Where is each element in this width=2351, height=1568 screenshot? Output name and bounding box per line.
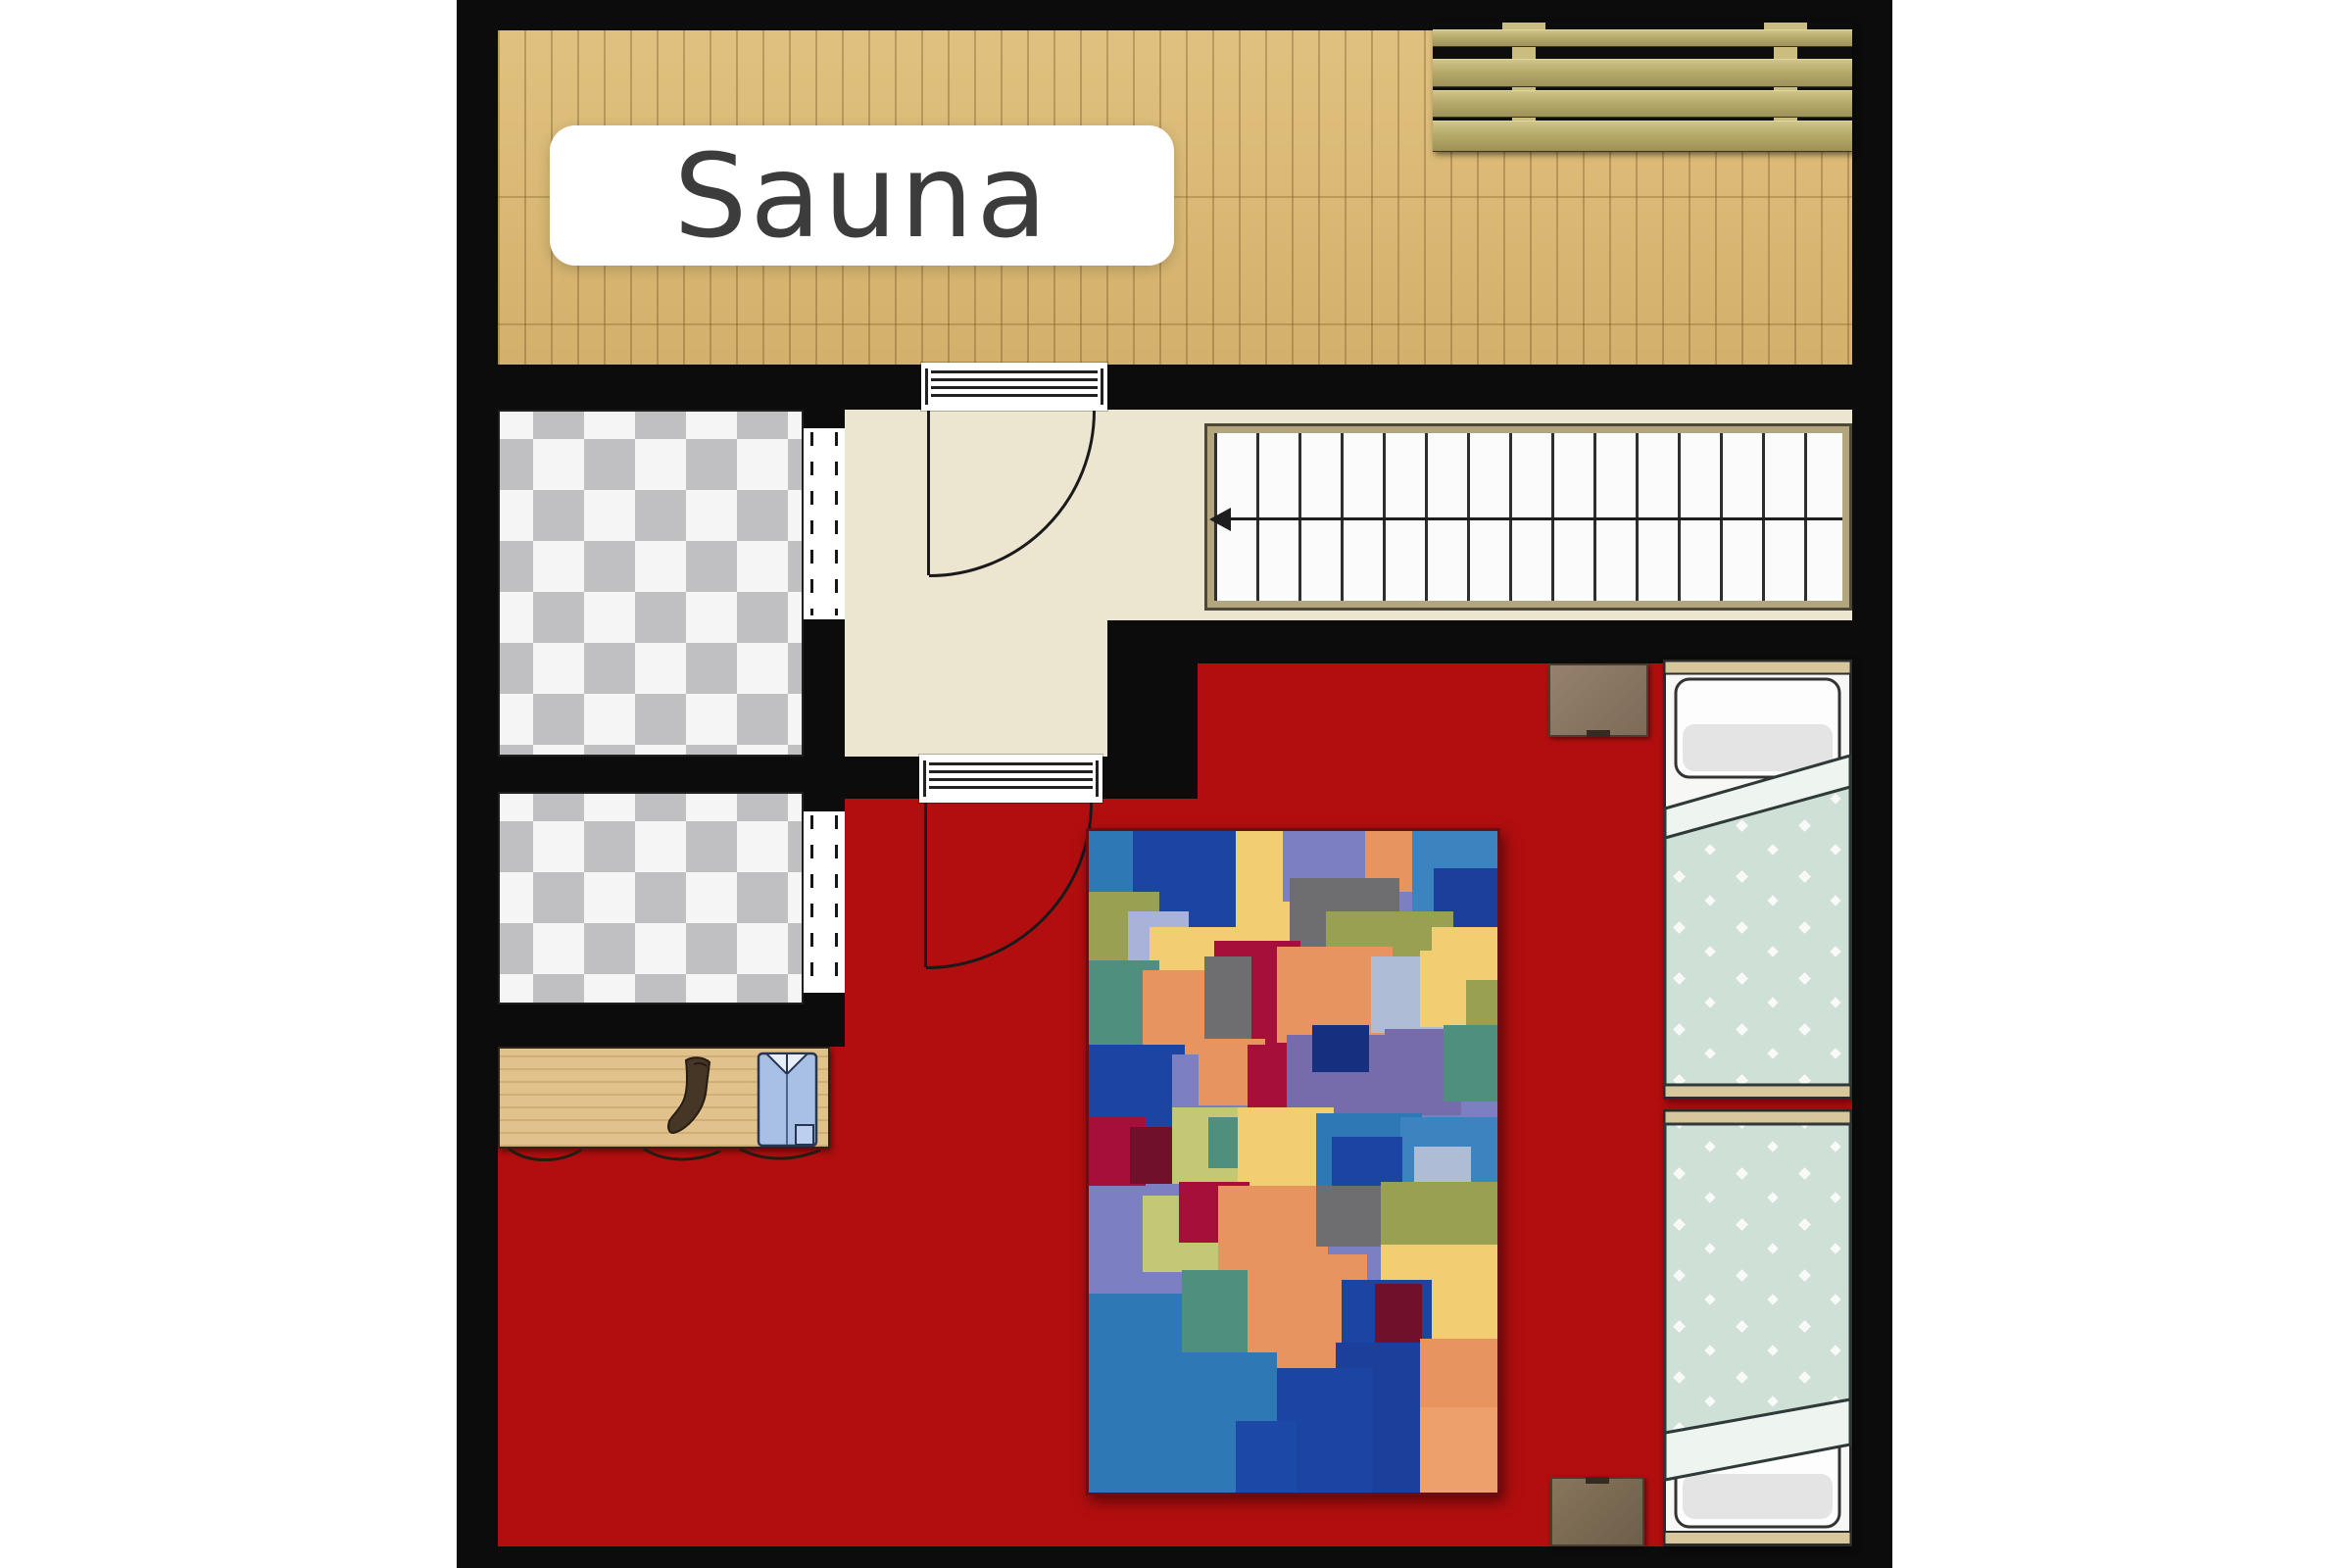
room-label-sauna: Sauna xyxy=(550,125,1174,266)
floor-plan: Sauna xyxy=(457,0,1892,1568)
rug-patch xyxy=(1204,956,1251,1047)
sauna-bench xyxy=(1433,23,1852,152)
bed-top xyxy=(1663,660,1852,1100)
page: { "plan": { "label": "Sauna", "descripti… xyxy=(0,0,2351,1568)
rug xyxy=(1086,828,1500,1495)
nightstand-bottom xyxy=(1550,1477,1644,1546)
sauna-door xyxy=(921,363,1107,411)
stair-direction-line xyxy=(1214,517,1842,520)
rug-patch xyxy=(1420,1407,1497,1493)
rug-patch xyxy=(1375,1284,1422,1345)
bench-slat xyxy=(1433,121,1852,152)
wood-seam xyxy=(498,323,1852,325)
wall-opening-upper xyxy=(804,428,845,619)
bed-bottom xyxy=(1663,1109,1852,1546)
bench-slat xyxy=(1433,29,1852,47)
bedroom-door-leaf xyxy=(924,803,927,967)
staircase xyxy=(1204,423,1852,611)
sauna-door-leaf xyxy=(927,411,930,575)
checkered-room-upper-floor xyxy=(498,410,804,757)
desk-skirt-squiggle xyxy=(498,1147,830,1168)
stair-direction-arrow-icon xyxy=(1209,508,1231,531)
bench-slat xyxy=(1433,90,1852,118)
checkered-room-lower-floor xyxy=(498,792,804,1004)
room-label-text: Sauna xyxy=(673,128,1050,264)
nightstand-handle xyxy=(1587,730,1610,737)
wall-opening-lower xyxy=(804,811,845,993)
bench-slat xyxy=(1433,59,1852,87)
rug-patch xyxy=(1236,1421,1297,1493)
shirt-icon xyxy=(757,1049,818,1149)
rug-patch xyxy=(1312,1025,1369,1072)
nightstand-handle xyxy=(1586,1477,1609,1484)
nightstand-top xyxy=(1548,663,1648,737)
rug-patch xyxy=(1444,1025,1497,1102)
bedroom-door xyxy=(919,755,1102,803)
boot-icon xyxy=(666,1054,715,1137)
